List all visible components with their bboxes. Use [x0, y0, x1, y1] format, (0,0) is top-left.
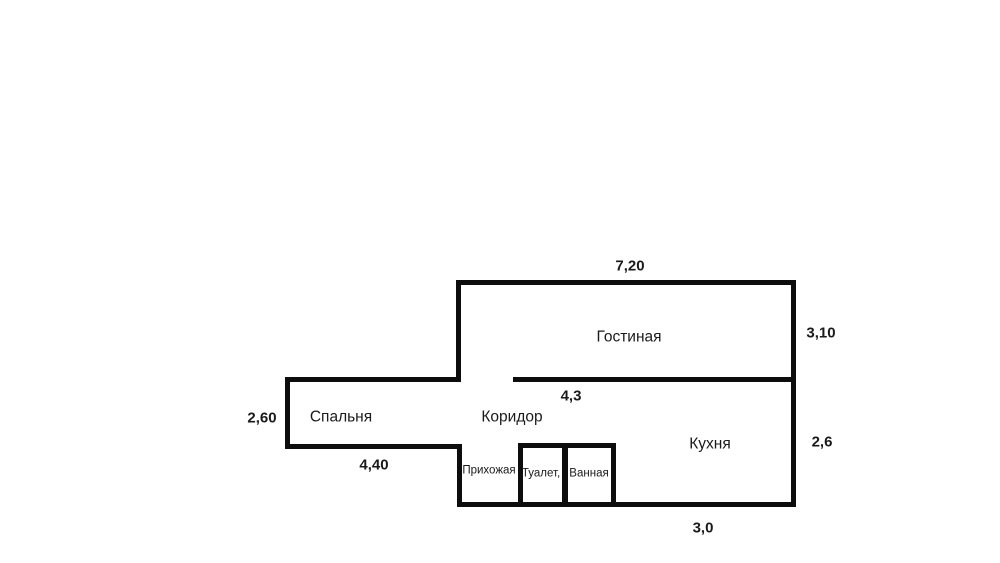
- room-label-hallway: Прихожая: [462, 465, 515, 477]
- wall-living-bottom: [513, 377, 796, 382]
- wall-bedroom-top: [285, 377, 461, 382]
- wall-outer-right: [791, 280, 796, 507]
- wall-living-left: [456, 280, 461, 382]
- wall-hallway-left: [457, 444, 462, 507]
- dimension-kitchen-depth: 2,6: [812, 435, 833, 450]
- wall-bedroom-bottom: [285, 444, 462, 449]
- dimension-living-room-width: 7,20: [615, 259, 644, 274]
- dimension-living-room-depth: 3,10: [806, 326, 835, 341]
- dimension-bedroom-width: 4,40: [359, 458, 388, 473]
- room-label-corridor: Коридор: [481, 409, 542, 425]
- wall-bedroom-left: [285, 377, 290, 449]
- room-label-bedroom: Спальня: [310, 409, 372, 425]
- room-label-living-room: Гостиная: [596, 329, 661, 345]
- dimension-corridor-length: 4,3: [561, 389, 582, 404]
- floor-plan-canvas: Гостиная Спальня Коридор Кухня Прихожая …: [0, 0, 1000, 563]
- wall-outer-bottom: [457, 502, 796, 507]
- wall-toilet-bathroom-divider: [562, 443, 568, 507]
- dimension-bedroom-depth: 2,60: [247, 411, 276, 426]
- room-label-toilet: Туалет,: [522, 468, 560, 480]
- wall-bathroom-right: [611, 443, 616, 507]
- room-label-kitchen: Кухня: [689, 436, 730, 452]
- dimension-kitchen-width: 3,0: [693, 521, 714, 536]
- wall-living-top: [456, 280, 796, 285]
- room-label-bathroom: Ванная: [569, 468, 608, 480]
